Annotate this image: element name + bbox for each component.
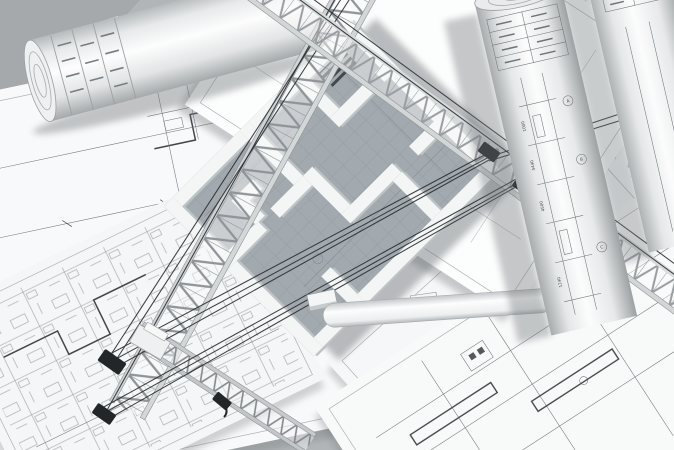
blueprint-scene: A B 1 2 3 1 730 × 350 2 1750 × 350 3 xyxy=(0,0,674,450)
scene-canvas: A B 1 2 3 1 730 × 350 2 1750 × 350 3 xyxy=(0,0,674,450)
